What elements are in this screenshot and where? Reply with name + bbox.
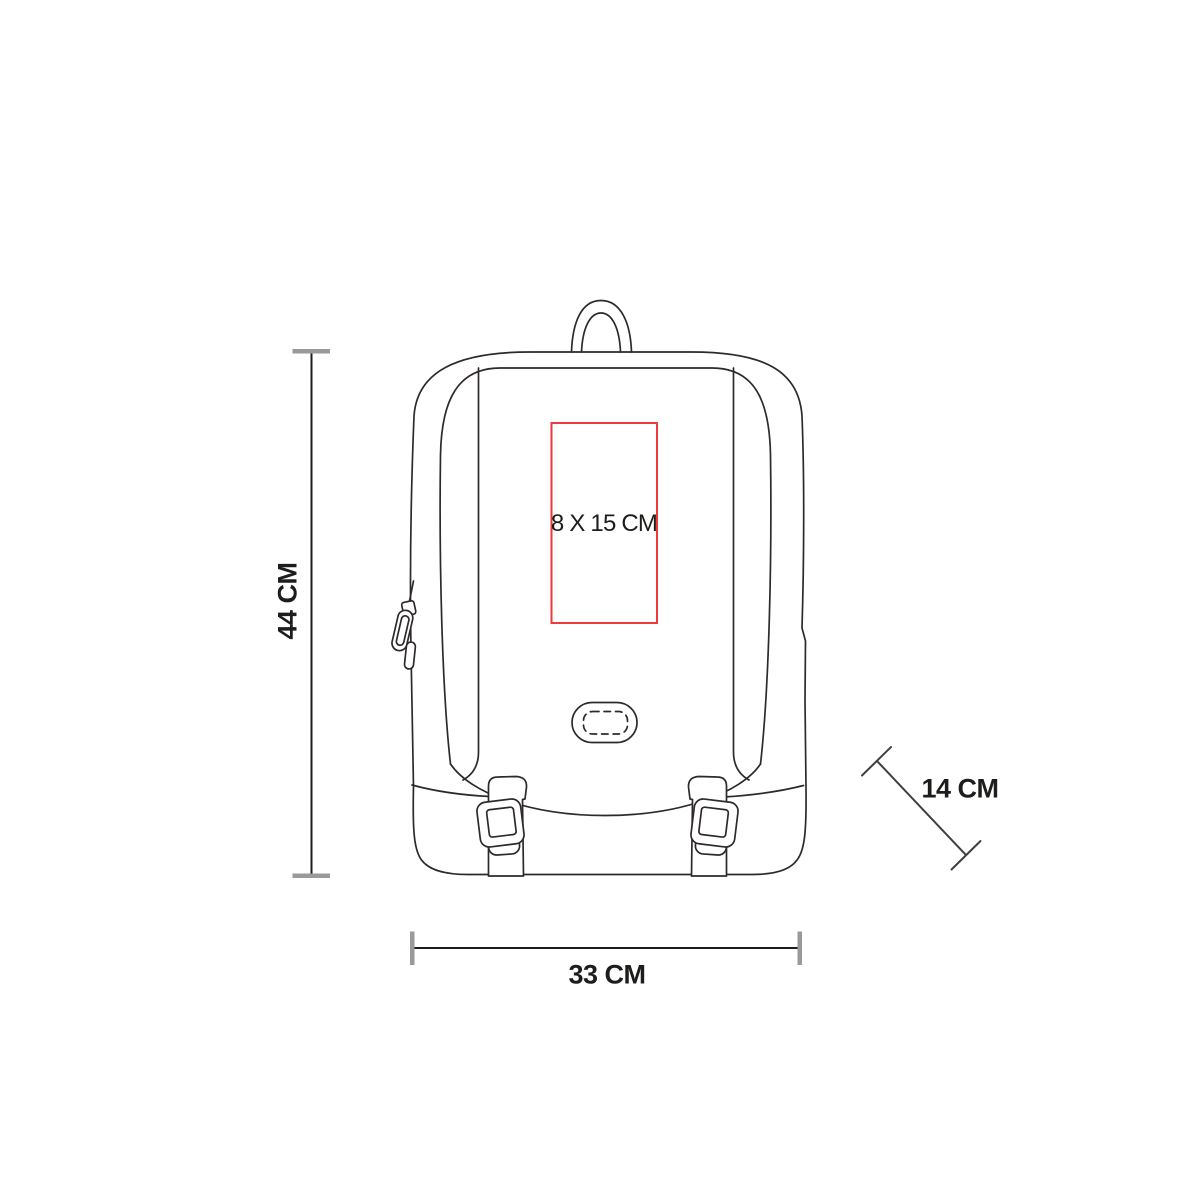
height-dimension-label: 44 CM <box>273 562 304 639</box>
product-dimension-diagram: 8 X 15 CM 44 CM 33 CM 14 CM <box>0 0 1200 1200</box>
height-tick-bottom <box>293 874 331 879</box>
depth-dimension-label: 14 CM <box>921 774 998 805</box>
flap-left-edge <box>463 368 479 780</box>
bottom-band-seam-left <box>412 785 490 797</box>
flap-right-edge <box>734 368 750 780</box>
bottom-band-seam-right <box>724 786 804 798</box>
side-zipper <box>390 581 416 669</box>
logo-patch-outline <box>572 703 637 743</box>
width-tick-left <box>410 932 415 966</box>
height-tick-top <box>293 349 331 354</box>
buckle-left-outer <box>476 798 525 848</box>
logo-patch <box>572 703 637 743</box>
print-area-label: 8 X 15 CM <box>551 510 657 538</box>
buckle-right-outer <box>690 798 739 848</box>
backpack-line-drawing <box>0 0 1200 1200</box>
strap-right <box>688 777 739 877</box>
width-tick-right <box>798 932 803 966</box>
handle-outer-arc <box>572 301 632 353</box>
backpack <box>390 301 806 877</box>
dimension-depth-14cm <box>862 747 981 870</box>
width-dimension-label: 33 CM <box>568 960 645 991</box>
handle-inner-arc <box>582 313 621 352</box>
body-outline <box>410 352 806 875</box>
